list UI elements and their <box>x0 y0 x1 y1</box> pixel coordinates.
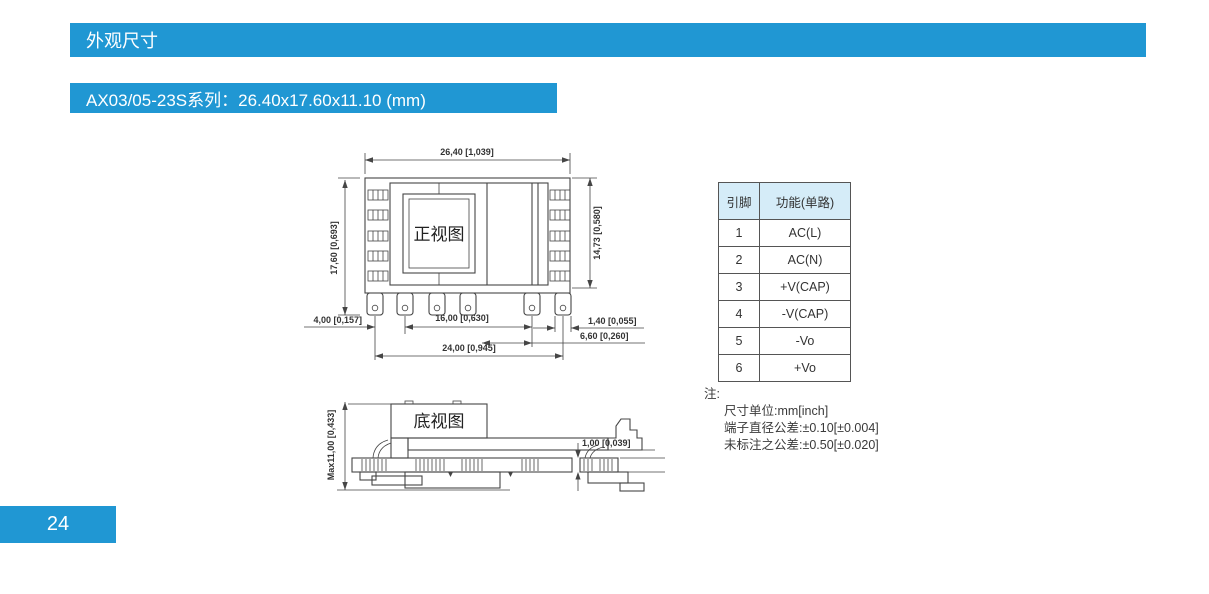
dim-pin-span-outer-label: 24,00 [0,945] <box>442 343 496 353</box>
pin-number: 1 <box>719 220 760 247</box>
series-title: AX03/05-23S系列：26.40x17.60x11.10 (mm) <box>86 86 426 111</box>
pin-function: +Vo <box>760 355 851 382</box>
dim-pin-width-label: 1,40 [0,055] <box>588 316 637 326</box>
dim-width-top-label: 26,40 [1,039] <box>440 147 494 157</box>
section-title: 外观尺寸 <box>86 27 158 53</box>
pin-function: -Vo <box>760 328 851 355</box>
page-number-badge: 24 <box>0 506 116 543</box>
pin-function: AC(N) <box>760 247 851 274</box>
pin-table-header-row: 引脚 功能(单路) <box>719 183 851 220</box>
bottom-view-underside-parts <box>360 472 644 491</box>
dim-height-right: 14,73 [0,580] <box>572 178 602 288</box>
pin-table-header-pin: 引脚 <box>719 183 760 220</box>
dim-pin-pitch-left: 4,00 [0,157] <box>304 315 405 360</box>
bottom-view-label: 底视图 <box>414 412 465 432</box>
pin-table-header-function: 功能(单路) <box>760 183 851 220</box>
pin-number: 2 <box>719 247 760 274</box>
pin-number: 5 <box>719 328 760 355</box>
dim-max-height-label: Max11,00 [0,433] <box>326 410 336 481</box>
dim-height-right-label: 14,73 [0,580] <box>592 206 602 260</box>
dim-pin-pitch-left-label: 4,00 [0,157] <box>313 315 362 325</box>
pin-function: -V(CAP) <box>760 301 851 328</box>
table-row: 3 +V(CAP) <box>719 274 851 301</box>
pin-function: AC(L) <box>760 220 851 247</box>
note-line-general-tolerance: 未标注之公差:±0.50[±0.020] <box>724 437 879 454</box>
section-title-bar: 外观尺寸 <box>70 23 1146 57</box>
datasheet-page: 外观尺寸 AX03/05-23S系列：26.40x17.60x11.10 (mm… <box>0 0 1209 594</box>
dim-pin-span-inner: 16,00 [0,630] <box>405 313 532 347</box>
module-body-outline: 正视图 <box>365 178 570 293</box>
table-row: 4 -V(CAP) <box>719 301 851 328</box>
dim-standoff-label: 1,00 [0,039] <box>582 438 631 448</box>
dim-pin-span-inner-label: 16,00 [0,630] <box>435 313 489 323</box>
front-view-drawing: 26,40 [1,039] 17,60 [0,693] 14,73 [0,580… <box>300 138 700 383</box>
pin-number: 6 <box>719 355 760 382</box>
table-row: 5 -Vo <box>719 328 851 355</box>
dim-height-left: 17,60 [0,693] <box>329 178 360 315</box>
table-row: 6 +Vo <box>719 355 851 382</box>
note-line-terminal-tolerance: 端子直径公差:±0.10[±0.004] <box>724 420 879 437</box>
bottom-view-drawing: Max11,00 [0,433] 底视图 <box>320 388 670 514</box>
pin-number: 4 <box>719 301 760 328</box>
pin-function-table: 引脚 功能(单路) 1 AC(L) 2 AC(N) 3 +V(CAP) 4 -V… <box>718 182 851 382</box>
pin-function: +V(CAP) <box>760 274 851 301</box>
right-side-pads <box>550 190 570 281</box>
series-title-bar: AX03/05-23S系列：26.40x17.60x11.10 (mm) <box>70 83 557 113</box>
page-number: 24 <box>47 513 69 536</box>
notes-block: 注: 尺寸单位:mm[inch] 端子直径公差:±0.10[±0.004] 未标… <box>704 386 879 454</box>
left-side-pads <box>368 190 388 281</box>
note-line-units: 尺寸单位:mm[inch] <box>724 403 879 420</box>
bottom-view-board <box>352 458 618 472</box>
notes-title: 注: <box>704 386 879 403</box>
front-view-label: 正视图 <box>414 225 465 245</box>
dim-width-top: 26,40 [1,039] <box>365 147 570 174</box>
table-row: 1 AC(L) <box>719 220 851 247</box>
pin-number: 3 <box>719 274 760 301</box>
dim-pin-offset-right: 6,60 [0,260] <box>482 331 645 346</box>
dim-pin-width: 1,40 [0,055] <box>533 316 644 332</box>
table-row: 2 AC(N) <box>719 247 851 274</box>
dim-height-left-label: 17,60 [0,693] <box>329 221 339 275</box>
dim-pin-offset-right-label: 6,60 [0,260] <box>580 331 629 341</box>
bottom-view-body: 底视图 <box>373 401 642 458</box>
bottom-pins <box>367 293 571 315</box>
